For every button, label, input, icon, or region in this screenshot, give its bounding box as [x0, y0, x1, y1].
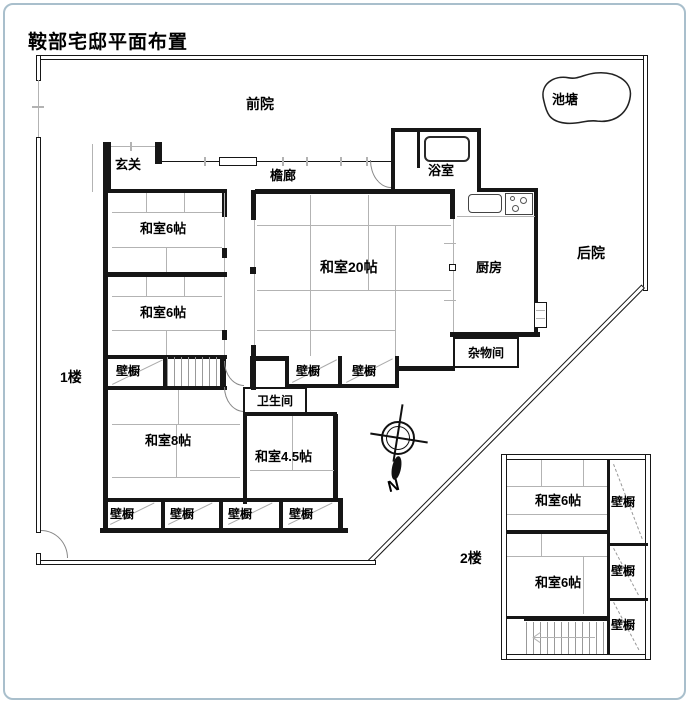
tatami-line	[541, 460, 542, 486]
tatami-line	[257, 290, 451, 291]
boundary-wall-bottom	[36, 560, 376, 565]
wall	[222, 330, 227, 340]
post-tick	[444, 243, 456, 244]
wall	[103, 189, 108, 533]
tatami-line	[368, 195, 369, 290]
tatami-line	[310, 195, 311, 356]
wall	[100, 528, 348, 533]
wall	[103, 189, 227, 193]
washitsu6-2f-a-label: 和室6帖	[535, 494, 581, 507]
washitsu45-label: 和室4.5帖	[255, 450, 312, 463]
closet-label: 壁橱	[170, 508, 194, 520]
fence-tick	[32, 106, 44, 108]
pond-label: 池塘	[552, 93, 578, 106]
tatami-line	[583, 460, 584, 486]
veranda-edge	[162, 161, 395, 162]
tatami-line	[507, 556, 607, 557]
wall	[219, 500, 223, 530]
closet-label: 壁橱	[611, 619, 635, 631]
wall	[255, 189, 455, 194]
wall	[279, 500, 283, 530]
closet-label: 壁橱	[611, 496, 635, 508]
post	[449, 264, 456, 271]
bathroom-label: 浴室	[428, 164, 454, 177]
wall	[103, 498, 343, 502]
tatami-line	[583, 556, 584, 614]
boundary-wall-left-upper	[36, 55, 41, 81]
sink-icon	[468, 194, 502, 213]
wall	[251, 190, 256, 220]
tatami-line	[112, 296, 222, 297]
page-title: 鞍部宅邸平面布置	[28, 27, 188, 54]
washitsu6-a-label: 和室6帖	[140, 222, 186, 235]
wall	[450, 189, 455, 219]
washitsu6-b-label: 和室6帖	[140, 306, 186, 319]
kitchen-door	[534, 302, 547, 328]
post-tick	[340, 157, 342, 166]
post-tick	[306, 157, 308, 166]
tatami-line	[166, 330, 167, 355]
washitsu8-label: 和室8帖	[145, 434, 191, 447]
wall	[222, 248, 227, 258]
wall	[161, 500, 165, 530]
inset-wall-bottom	[501, 654, 651, 660]
wall	[417, 128, 420, 168]
boundary-wall-top	[36, 55, 648, 60]
post-tick	[366, 157, 368, 166]
washitsu20-label: 和室20帖	[320, 260, 378, 274]
pond-shape	[534, 68, 638, 135]
counter-line	[457, 216, 535, 217]
wall	[534, 188, 538, 302]
stairs-2f	[526, 622, 607, 654]
tatami-line	[146, 277, 147, 296]
wall	[103, 142, 111, 192]
engawa-label: 檐廊	[270, 169, 296, 182]
genkan-label: 玄关	[115, 158, 141, 171]
stairs-1f	[167, 357, 222, 386]
toilet-room: 卫生间	[243, 387, 307, 414]
wall	[333, 414, 338, 502]
closet-label: 壁橱	[110, 508, 134, 520]
tatami-line	[184, 277, 185, 296]
floor2-label: 2楼	[460, 551, 482, 565]
wall	[155, 142, 162, 164]
tatami-line	[178, 390, 179, 424]
tatami-line	[176, 424, 177, 477]
tatami-line	[166, 247, 167, 272]
wall	[481, 188, 538, 192]
wall	[243, 412, 337, 416]
wall	[607, 543, 648, 546]
back-yard-label: 后院	[577, 246, 605, 260]
washitsu6-2f-b-label: 和室6帖	[535, 576, 581, 589]
bathtub-icon	[424, 136, 470, 162]
floor1-label: 1楼	[60, 370, 82, 384]
wall	[285, 384, 399, 388]
post-tick	[444, 300, 456, 301]
closet-label: 壁橱	[611, 565, 635, 577]
wall	[524, 619, 608, 621]
closet-label: 壁橱	[352, 365, 376, 377]
porch-line	[111, 146, 155, 147]
burner-icon	[520, 197, 527, 204]
wall	[477, 128, 481, 192]
tatami-line	[112, 477, 240, 478]
closet-label: 壁橱	[228, 508, 252, 520]
tatami-line	[507, 514, 607, 515]
stove-icon	[505, 193, 533, 215]
tatami-line	[507, 486, 607, 487]
front-yard-label: 前院	[246, 97, 274, 111]
kitchen-label: 厨房	[476, 261, 502, 274]
post-tick	[130, 142, 132, 151]
wall	[250, 267, 256, 274]
tatami-line	[250, 470, 334, 471]
boundary-wall-left-lower	[36, 137, 41, 533]
veranda-step	[219, 157, 257, 166]
tatami-line	[112, 330, 222, 331]
wall	[507, 530, 607, 534]
toilet-label: 卫生间	[257, 392, 293, 409]
stairs-arrow-line	[533, 637, 595, 638]
inset-wall-right	[645, 454, 651, 660]
porch-line	[92, 144, 93, 192]
burner-icon	[512, 205, 519, 212]
wall	[251, 345, 256, 390]
closet-label: 壁橱	[116, 365, 140, 377]
storage-label: 杂物间	[468, 344, 504, 361]
boundary-fence-line	[38, 80, 39, 138]
wall	[103, 386, 227, 390]
post-tick	[282, 157, 284, 166]
inset-wall-left	[501, 454, 507, 660]
wall	[103, 272, 227, 277]
tatami-line	[257, 225, 451, 226]
wall	[250, 356, 288, 361]
door-line	[536, 318, 545, 319]
wall	[338, 498, 343, 531]
tatami-line	[257, 330, 395, 331]
tatami-line	[541, 534, 542, 556]
wall	[243, 412, 247, 504]
boundary-wall-right	[643, 55, 648, 291]
tatami-line	[112, 247, 222, 248]
wall	[607, 598, 648, 601]
inset-wall-top	[501, 454, 651, 460]
storage-room: 杂物间	[453, 337, 519, 368]
door-line	[536, 310, 545, 311]
burner-icon	[510, 196, 515, 201]
closet-label: 壁橱	[296, 365, 320, 377]
closet-label: 壁橱	[289, 508, 313, 520]
wall	[607, 460, 610, 655]
post-tick	[204, 157, 206, 166]
wall	[397, 366, 455, 371]
tatami-line	[184, 193, 185, 212]
tatami-line	[146, 193, 147, 212]
floor-plan-canvas: 鞍部宅邸平面布置 前院 后院 池塘 1楼 玄关 檐廊 和室6帖	[0, 0, 689, 703]
wall	[391, 128, 395, 192]
wall	[391, 128, 481, 132]
tatami-line	[112, 212, 222, 213]
